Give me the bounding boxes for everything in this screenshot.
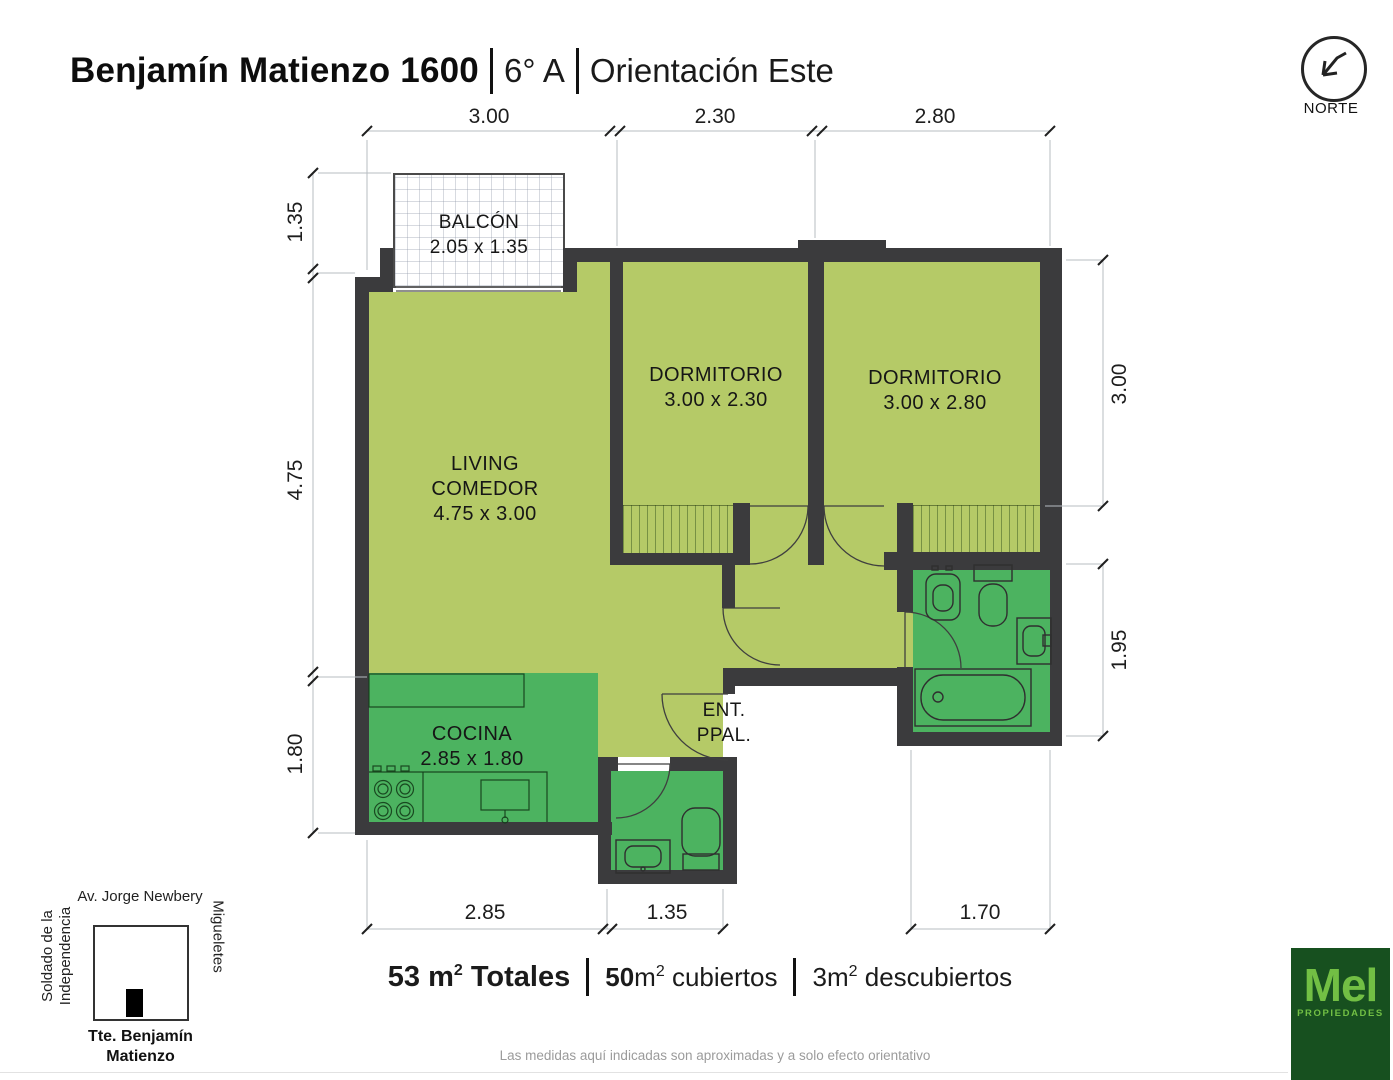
wall-bath-left-upper	[897, 570, 913, 612]
dim-top-3: 2.80	[895, 105, 975, 129]
area-total: 53 m2 Totales	[388, 961, 570, 994]
page-title: Benjamín Matienzo 1600 6° A Orientación …	[70, 48, 834, 94]
wall-hall-top	[610, 553, 750, 565]
map-street-bottom: Tte. BenjamínMatienzo	[63, 1027, 218, 1067]
wall-bedroom1-left	[610, 262, 623, 565]
area-separator	[793, 958, 796, 996]
closet-bedroom2	[913, 505, 1040, 554]
wall-toilette-left	[598, 757, 611, 884]
title-unit: 6° A	[504, 52, 565, 90]
north-label: NORTE	[1288, 100, 1374, 117]
footer-divider	[0, 1072, 1288, 1073]
floorplan-page: Benjamín Matienzo 1600 6° A Orientación …	[0, 0, 1393, 1080]
area-uncovered: 3m2 descubiertos	[812, 962, 1012, 993]
title-separator	[576, 48, 579, 94]
agency-logo: Mel PROPIEDADES	[1291, 948, 1390, 1080]
wall-kitchen-bottom	[355, 822, 612, 835]
dim-right-2: 1.95	[1108, 610, 1132, 690]
map-street-left: Soldado de laIndependencia	[39, 881, 75, 1031]
north-arrow-glyph	[1304, 39, 1358, 93]
dim-left-3: 1.80	[284, 714, 308, 794]
title-address: Benjamín Matienzo 1600	[70, 51, 479, 91]
dim-top-1: 3.00	[449, 105, 529, 129]
wall-right-upper	[1040, 248, 1062, 552]
wall-bath-top	[884, 552, 1062, 570]
label-balcony: BALCÓN2.05 x 1.35	[394, 210, 564, 260]
label-bedroom2: DORMITORIO3.00 x 2.80	[835, 366, 1035, 416]
area-separator	[586, 958, 589, 996]
title-orientation: Orientación Este	[590, 52, 834, 90]
wall-left	[355, 277, 369, 835]
dim-left-1: 1.35	[284, 182, 308, 262]
label-kitchen: COCINA2.85 x 1.80	[372, 722, 572, 772]
label-entrance: ENT.PPAL.	[664, 698, 784, 748]
room-toilette	[611, 771, 723, 870]
map-street-right: Migueletes	[210, 862, 227, 1012]
wall-right-lower	[1050, 552, 1062, 746]
north-arrow-icon	[1301, 36, 1367, 102]
dim-bottom-3: 1.70	[940, 901, 1020, 925]
dim-right-1: 3.00	[1108, 344, 1132, 424]
map-building-marker	[126, 989, 143, 1017]
agency-logo-sub: PROPIEDADES	[1291, 1008, 1390, 1019]
map-block	[93, 925, 189, 1021]
dim-bottom-1: 2.85	[445, 901, 525, 925]
agency-logo-name: Mel	[1291, 962, 1390, 1008]
wall-bath-bottom	[897, 732, 1062, 746]
disclaimer-text: Las medidas aquí indicadas son aproximad…	[215, 1048, 1215, 1063]
dim-top-2: 2.30	[675, 105, 755, 129]
dim-bottom-2: 1.35	[627, 901, 707, 925]
wall-top-left	[355, 277, 393, 292]
closet-bedroom1	[623, 505, 733, 555]
label-living: LIVINGCOMEDOR4.75 x 3.00	[385, 452, 585, 527]
wall-balcony-left-stub	[380, 248, 393, 278]
wall-hall-bottom	[723, 668, 913, 686]
area-summary: 53 m2 Totales 50m2 cubiertos 3m2 descubi…	[340, 958, 1060, 996]
room-living-notch	[577, 262, 610, 302]
map-street-top: Av. Jorge Newbery	[60, 888, 220, 905]
room-bathroom	[913, 570, 1050, 732]
title-separator	[490, 48, 493, 94]
dim-left-2: 4.75	[284, 440, 308, 520]
wall-entry-jamb	[723, 686, 735, 694]
label-bedroom1: DORMITORIO3.00 x 2.30	[616, 363, 816, 413]
wall-toilette-bottom	[598, 870, 737, 884]
area-covered: 50m2 cubiertos	[605, 962, 777, 993]
wall-toilette-right	[723, 757, 737, 884]
